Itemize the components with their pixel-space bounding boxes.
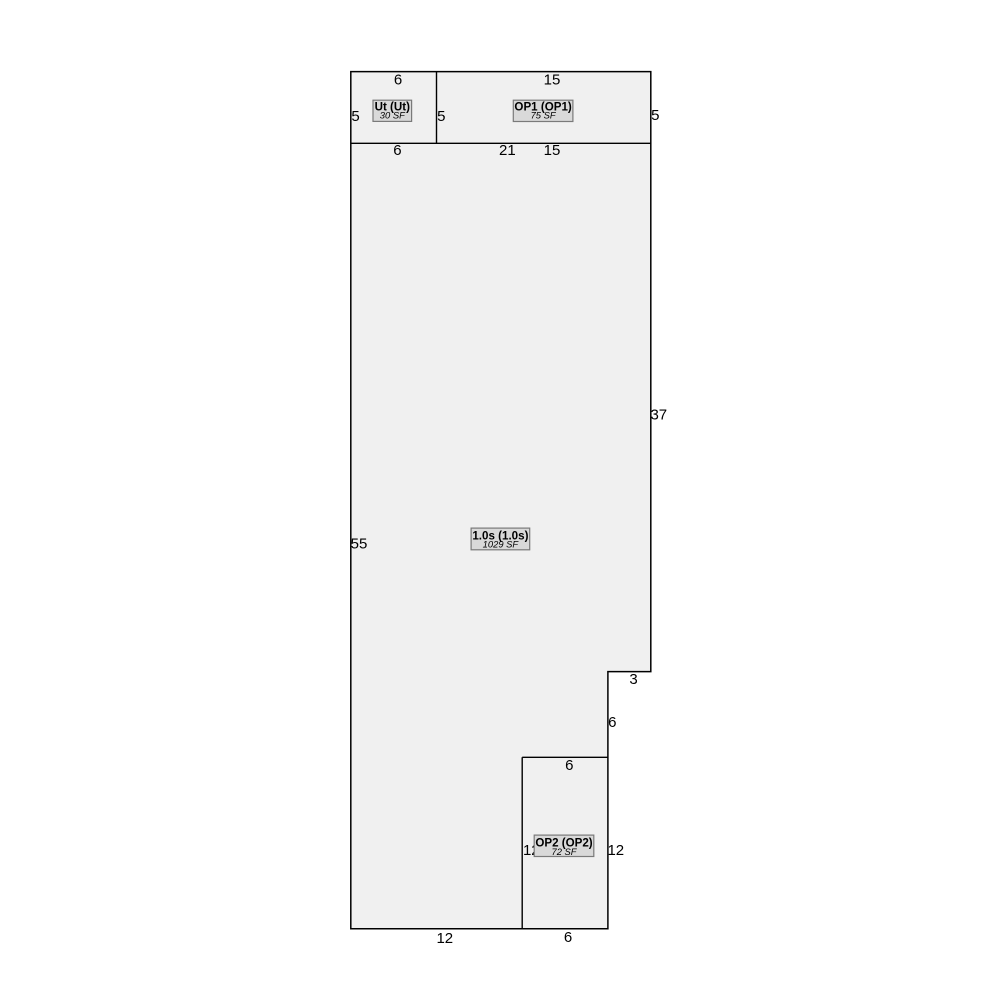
svg-text:6: 6 <box>565 757 573 774</box>
svg-text:21: 21 <box>499 142 516 159</box>
svg-text:12: 12 <box>436 930 453 947</box>
svg-text:55: 55 <box>351 536 368 553</box>
svg-text:30 SF: 30 SF <box>380 110 406 121</box>
svg-text:15: 15 <box>544 142 561 159</box>
svg-text:1029 SF: 1029 SF <box>483 538 520 549</box>
svg-text:6: 6 <box>393 142 401 159</box>
svg-text:72 SF: 72 SF <box>551 846 577 857</box>
svg-text:6: 6 <box>608 714 616 731</box>
svg-text:12: 12 <box>607 842 624 859</box>
svg-text:5: 5 <box>351 108 359 125</box>
svg-text:75 SF: 75 SF <box>531 109 557 120</box>
svg-text:15: 15 <box>544 71 561 88</box>
svg-text:3: 3 <box>629 671 637 688</box>
svg-text:5: 5 <box>651 107 659 124</box>
svg-text:37: 37 <box>650 407 667 424</box>
svg-text:6: 6 <box>394 71 402 88</box>
svg-text:6: 6 <box>564 929 572 946</box>
svg-text:5: 5 <box>437 108 445 125</box>
